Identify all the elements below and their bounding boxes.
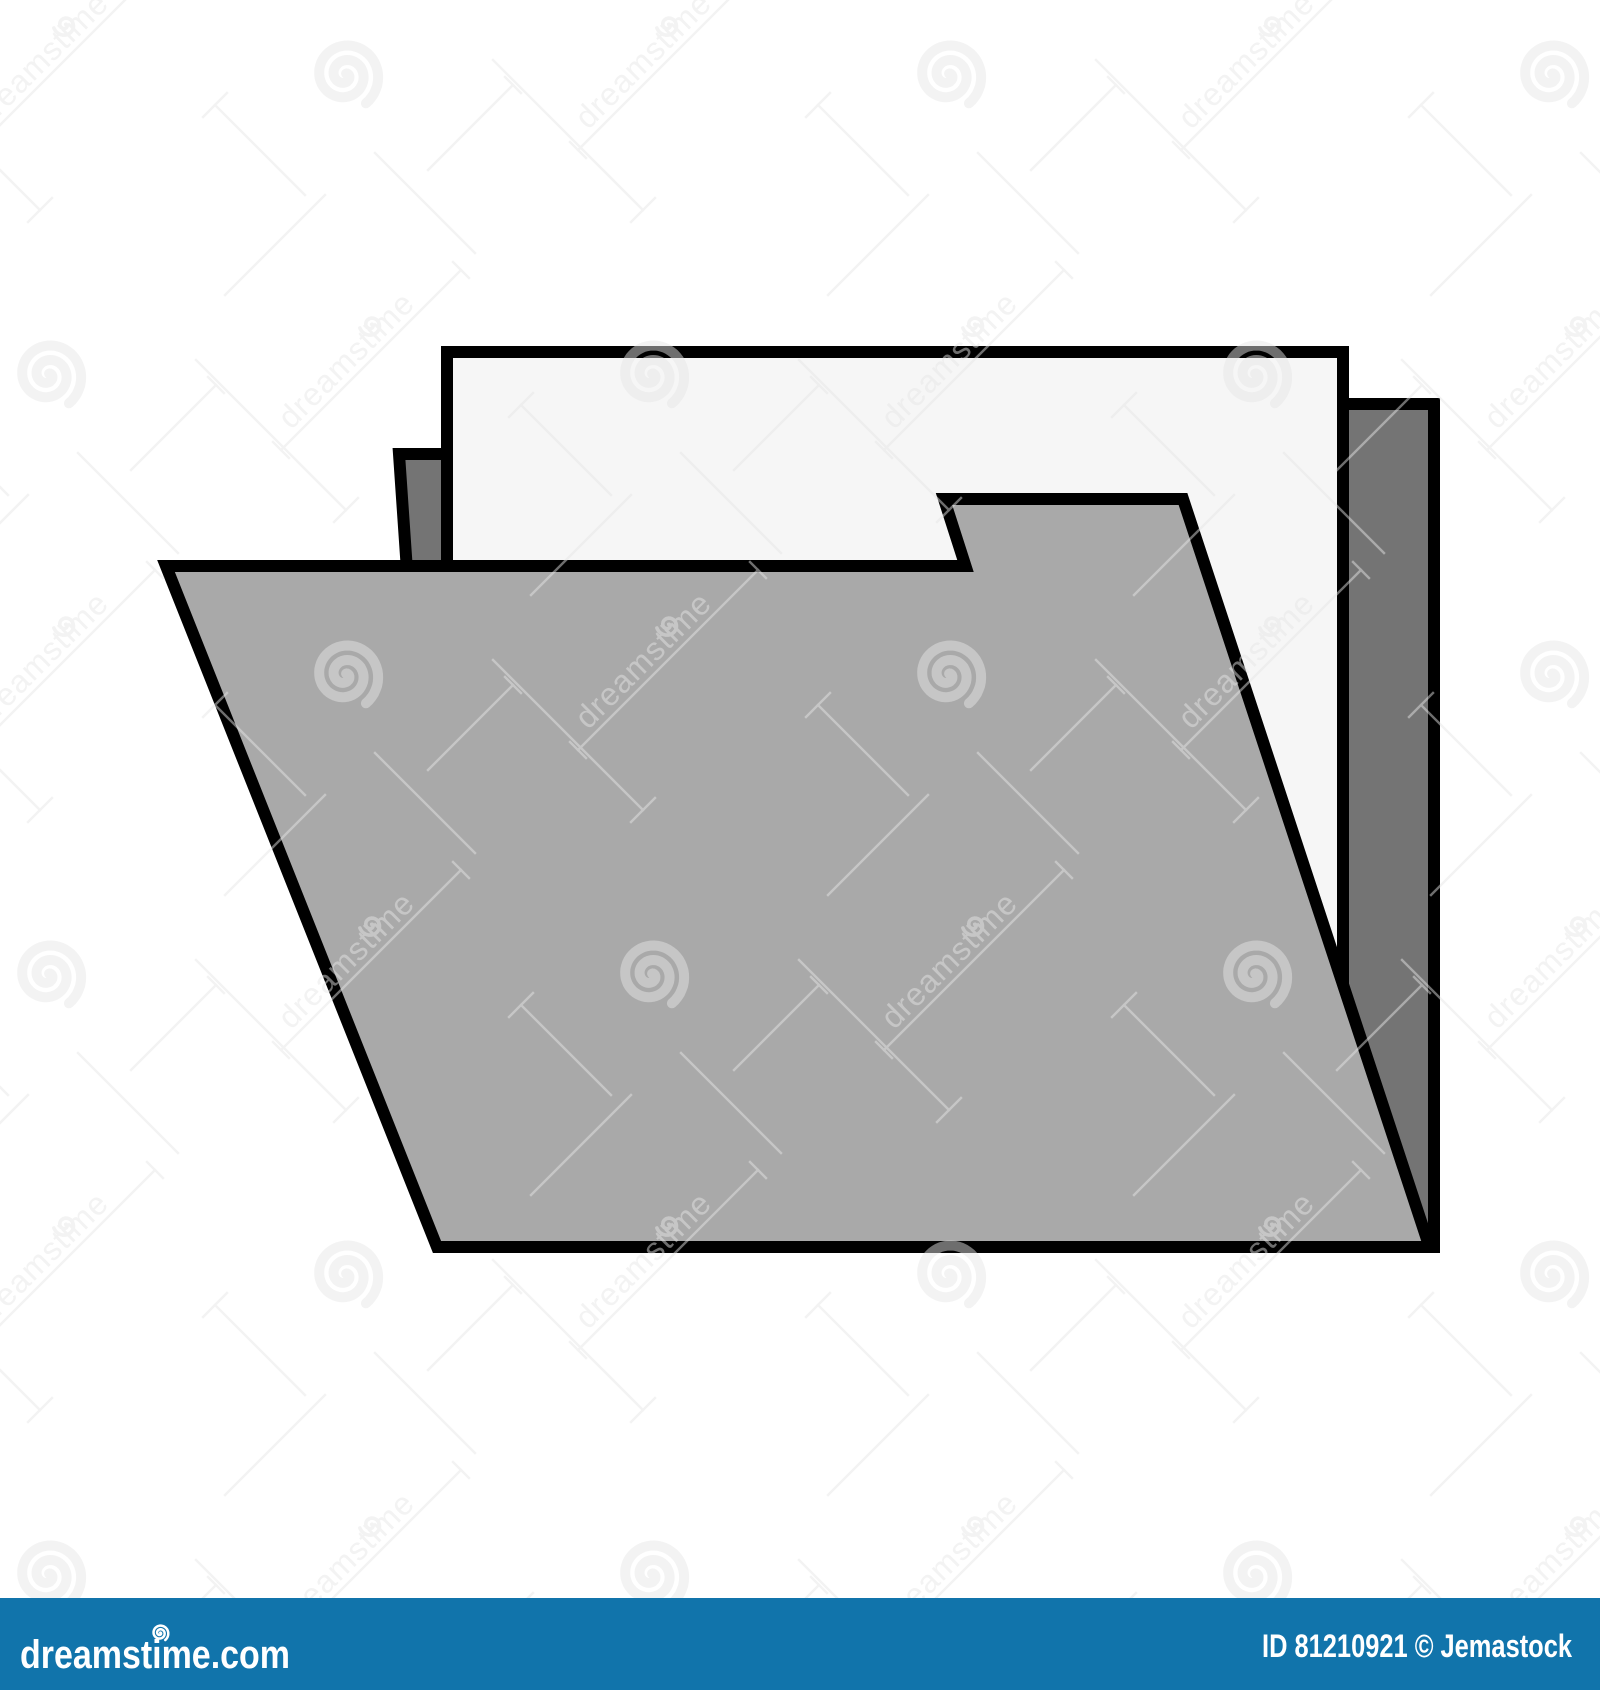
svg-text:ID 81210921 © Jemastock: ID 81210921 © Jemastock — [1262, 1628, 1572, 1664]
svg-text:dreamstime.com: dreamstime.com — [20, 1633, 290, 1677]
